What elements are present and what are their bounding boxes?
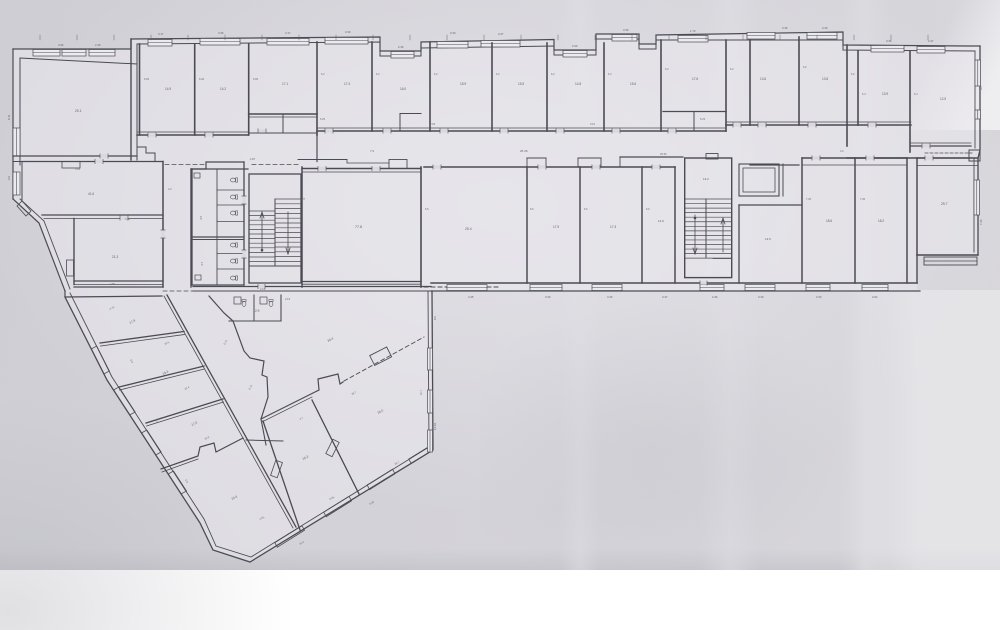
svg-text:17.6: 17.6: [692, 77, 698, 81]
svg-text:2.9: 2.9: [199, 216, 203, 220]
svg-text:3.36: 3.36: [782, 26, 788, 30]
svg-text:3.30: 3.30: [345, 30, 351, 34]
svg-text:6.6: 6.6: [530, 207, 534, 211]
svg-text:6.06: 6.06: [253, 77, 259, 81]
svg-text:3.30: 3.30: [758, 295, 764, 299]
svg-text:6.06: 6.06: [199, 77, 205, 81]
svg-text:2.19: 2.19: [260, 287, 266, 291]
svg-text:4.06: 4.06: [58, 43, 64, 47]
svg-text:3.37: 3.37: [498, 32, 504, 36]
svg-text:3.30: 3.30: [623, 28, 629, 32]
svg-text:8.11: 8.11: [7, 114, 11, 120]
svg-text:1.9: 1.9: [200, 262, 204, 266]
svg-text:3.30: 3.30: [545, 295, 551, 299]
svg-text:1.73: 1.73: [690, 29, 696, 33]
svg-text:6.6: 6.6: [584, 207, 588, 211]
svg-text:17.9: 17.9: [553, 225, 559, 229]
svg-text:6.2: 6.2: [851, 72, 855, 76]
svg-text:20.1: 20.1: [75, 109, 82, 113]
svg-text:6.6: 6.6: [425, 207, 429, 211]
svg-text:12.5: 12.5: [940, 97, 946, 101]
svg-text:25.36: 25.36: [660, 152, 667, 156]
svg-text:3.30: 3.30: [607, 295, 613, 299]
svg-text:15.6: 15.6: [630, 82, 636, 86]
svg-text:3.01: 3.01: [590, 122, 596, 126]
svg-text:25.4: 25.4: [465, 227, 472, 231]
svg-text:6.2: 6.2: [376, 72, 380, 76]
svg-text:4.80: 4.80: [110, 282, 116, 286]
svg-text:13.6: 13.6: [765, 237, 771, 241]
svg-text:17.3: 17.3: [610, 225, 616, 229]
svg-text:18.2: 18.2: [878, 219, 884, 223]
svg-text:2.19: 2.19: [285, 297, 291, 301]
svg-text:2.9: 2.9: [255, 309, 260, 313]
svg-text:13.8: 13.8: [822, 77, 828, 81]
svg-text:41.6: 41.6: [88, 192, 94, 196]
svg-text:18.6: 18.6: [826, 219, 832, 223]
svg-text:4.35: 4.35: [468, 295, 474, 299]
svg-text:6.2: 6.2: [608, 72, 612, 76]
svg-text:2.36: 2.36: [712, 295, 718, 299]
svg-text:15.5: 15.5: [518, 82, 524, 86]
svg-text:6.4: 6.4: [862, 92, 866, 96]
svg-text:10.3: 10.3: [298, 539, 305, 545]
svg-text:14.8: 14.8: [575, 82, 581, 86]
svg-text:6.2: 6.2: [551, 72, 555, 76]
svg-text:14.9: 14.9: [658, 219, 664, 223]
svg-text:16.0: 16.0: [400, 87, 406, 91]
svg-text:13.9: 13.9: [882, 92, 888, 96]
svg-text:25.36: 25.36: [520, 149, 528, 153]
svg-text:6.4: 6.4: [914, 92, 918, 96]
svg-text:15.9: 15.9: [460, 82, 466, 86]
svg-text:77.8: 77.8: [355, 225, 362, 229]
svg-text:3.47: 3.47: [662, 295, 668, 299]
svg-text:6.87: 6.87: [300, 197, 306, 201]
svg-text:6.2: 6.2: [434, 72, 438, 76]
svg-text:6.6: 6.6: [646, 207, 650, 211]
svg-text:2.9: 2.9: [7, 176, 11, 180]
svg-text:7.36: 7.36: [860, 197, 866, 201]
svg-text:2.36: 2.36: [398, 45, 404, 49]
svg-text:6.06: 6.06: [144, 77, 150, 81]
svg-text:6.2: 6.2: [730, 67, 734, 71]
svg-text:6.2: 6.2: [665, 67, 669, 71]
svg-text:6.2: 6.2: [803, 65, 807, 69]
svg-text:6.2: 6.2: [321, 72, 325, 76]
svg-text:17.1: 17.1: [282, 82, 288, 86]
svg-text:14.93: 14.93: [433, 423, 437, 430]
svg-text:14.9: 14.9: [165, 87, 171, 91]
svg-text:7.36: 7.36: [419, 390, 423, 396]
svg-text:7.36: 7.36: [979, 219, 983, 225]
svg-text:4.05: 4.05: [75, 167, 81, 171]
svg-text:17.4: 17.4: [344, 82, 350, 86]
svg-text:3.30: 3.30: [816, 295, 822, 299]
svg-text:6.2: 6.2: [496, 72, 500, 76]
svg-text:3.17: 3.17: [285, 31, 291, 35]
svg-text:2.30: 2.30: [95, 43, 101, 47]
svg-text:9.0: 9.0: [979, 86, 983, 90]
svg-text:9.0: 9.0: [433, 316, 437, 320]
svg-text:2.47: 2.47: [928, 39, 934, 43]
svg-text:2.25: 2.25: [430, 122, 436, 126]
svg-text:29.7: 29.7: [941, 202, 948, 206]
svg-text:4.6: 4.6: [840, 149, 844, 153]
svg-text:5.05: 5.05: [368, 499, 375, 505]
svg-text:2.00: 2.00: [572, 44, 578, 48]
svg-text:14.2: 14.2: [220, 87, 226, 91]
svg-text:4.06: 4.06: [125, 217, 131, 221]
svg-text:3.30: 3.30: [822, 26, 828, 30]
svg-text:13.6: 13.6: [760, 77, 766, 81]
svg-text:21.3: 21.3: [112, 255, 118, 259]
svg-text:7.36: 7.36: [806, 197, 812, 201]
svg-text:3.17: 3.17: [158, 32, 164, 36]
svg-text:4.2: 4.2: [168, 187, 172, 191]
svg-text:5.25: 5.25: [320, 117, 326, 121]
svg-text:7.9: 7.9: [370, 149, 374, 153]
svg-text:3.64: 3.64: [872, 295, 878, 299]
svg-text:3.36: 3.36: [218, 31, 224, 35]
svg-text:5.23: 5.23: [700, 117, 706, 121]
svg-text:3.30: 3.30: [450, 31, 456, 35]
svg-text:1.87: 1.87: [250, 157, 256, 161]
svg-text:13.2: 13.2: [703, 177, 709, 181]
